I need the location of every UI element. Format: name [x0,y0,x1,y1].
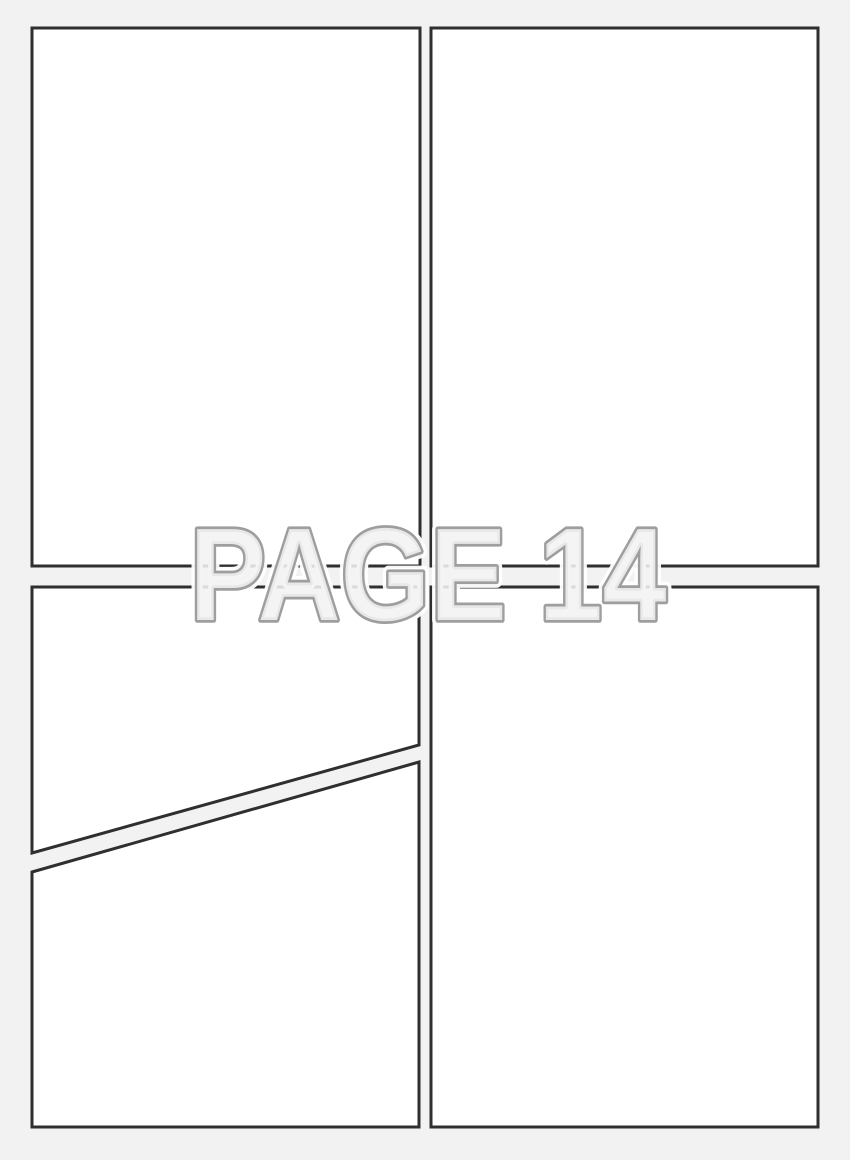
comic-page-template: PAGE 14 PAGE 14 [0,0,850,1160]
comic-page-canvas: PAGE 14 PAGE 14 [0,0,850,1160]
page-label: PAGE 14 [190,501,667,648]
panel-bottom-right [431,587,818,1127]
panel-top-left [32,28,420,566]
panel-top-right [431,28,818,566]
